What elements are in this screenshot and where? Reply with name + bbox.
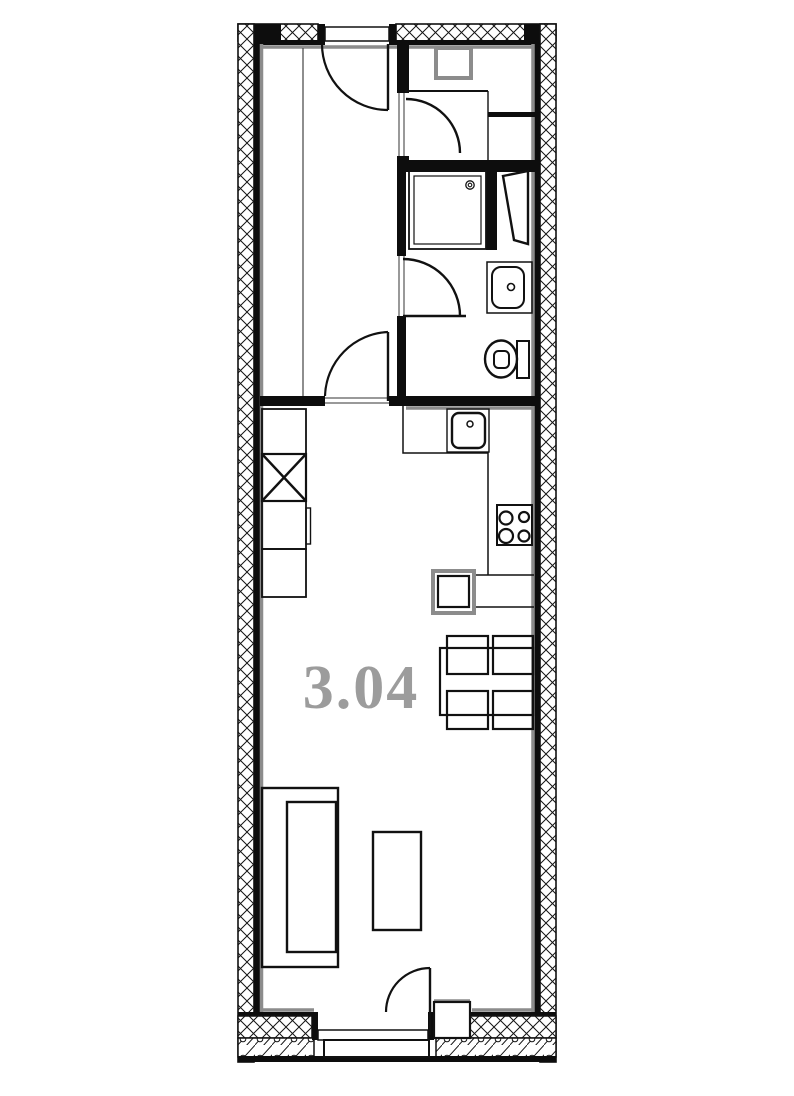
window-jamb-left (318, 24, 325, 45)
unit-label: 3.04 (303, 654, 420, 722)
wall-stub-shower (486, 166, 497, 250)
entrance-shaft-box (434, 1002, 470, 1038)
bottom-wall-hatch-left (238, 1016, 312, 1038)
wall-bedroom-living-left (260, 396, 325, 406)
entrance-step (324, 1040, 429, 1057)
floor-plan-page: 3.04 (0, 0, 794, 1096)
french-window-frame (325, 27, 389, 41)
partition-bedroom-hall-upper (397, 44, 409, 93)
right-wall (540, 24, 556, 1062)
wall-bathroom-left-upper (397, 172, 406, 256)
right-wall-inner-edge (534, 40, 540, 1016)
left-wall (238, 24, 254, 1062)
bottom-wall-insulation-left (238, 1038, 314, 1057)
wall-stub-hall (488, 112, 535, 117)
wall-bathroom-left-lower (397, 316, 406, 400)
entrance-jamb-left (312, 1012, 318, 1040)
floor-plan: 3.04 (0, 0, 794, 1096)
left-wall-inner-edge (254, 40, 260, 1016)
window-jamb-right (389, 24, 396, 45)
entrance-sill (318, 1030, 428, 1040)
bottom-wall-insulation-right (436, 1038, 556, 1057)
wall-bathroom-kitchen (389, 396, 535, 406)
